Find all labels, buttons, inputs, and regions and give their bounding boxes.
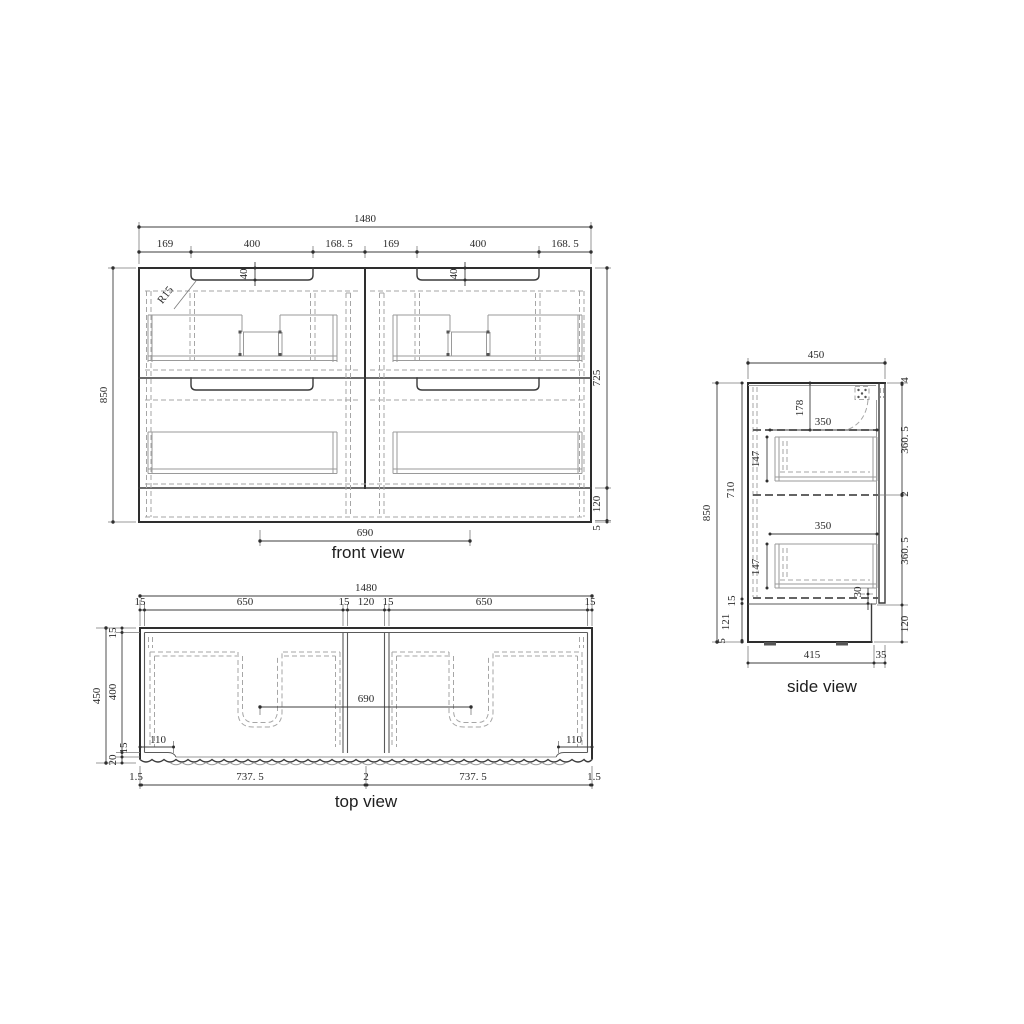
dim-front-corner-radius: R15 <box>155 284 176 306</box>
dim-front-recess-depth-left: 40 <box>238 268 250 280</box>
dim-top-seg-5: 650 <box>476 596 493 608</box>
dim-side-top-drawer-depth: 350 <box>815 416 832 428</box>
dim-front-height-seg-1: 120 <box>591 495 603 512</box>
dim-top-bottom-seg-1: 737. 5 <box>236 771 264 783</box>
dim-side-right-seg-3: 360. 5 <box>899 537 911 565</box>
dim-top-bottom-seg-0: 1.5 <box>129 771 143 783</box>
front-view: 1480 169 400 168. 5 169 400 168. 5 850 7… <box>98 213 611 562</box>
drawing-canvas: 1480 169 400 168. 5 169 400 168. 5 850 7… <box>0 0 1024 1024</box>
dim-front-height-seg-0: 725 <box>591 369 603 386</box>
dim-top-bottom-seg-3: 737. 5 <box>459 771 487 783</box>
dim-front-overall-width: 1480 <box>354 213 377 225</box>
dim-top-depth-seg-3: 20 <box>107 754 119 766</box>
dim-top-basin-offset-right: 110 <box>566 734 583 746</box>
dim-side-right-seg-2: 2 <box>899 491 911 497</box>
dim-front-seg-0: 169 <box>157 238 174 250</box>
dim-side-benchtop-drop: 178 <box>794 399 806 416</box>
dim-side-bottom-seg-1: 35 <box>876 649 888 661</box>
dim-top-depth-seg-1: 400 <box>107 683 119 700</box>
dim-side-bottom-drawer-depth: 350 <box>815 520 832 532</box>
dim-top-seg-1: 650 <box>237 596 254 608</box>
dim-top-seg-0: 15 <box>135 596 147 608</box>
dim-top-overall-width: 1480 <box>355 582 378 594</box>
dim-side-bottom-rail: 30 <box>852 586 864 598</box>
dim-top-bottom-seg-2: 2 <box>363 771 369 783</box>
dim-side-left-seg-2: 121 <box>720 614 732 631</box>
dim-top-depth-seg-2: 15 <box>118 742 130 754</box>
front-view-title: front view <box>332 543 405 562</box>
dim-top-basin-spacing: 690 <box>358 693 375 705</box>
top-view-hidden-lines <box>149 637 584 747</box>
top-view-title: top view <box>335 792 398 811</box>
dim-front-seg-2: 168. 5 <box>325 238 353 250</box>
dim-top-seg-4: 15 <box>383 596 395 608</box>
front-view-dimensions: 1480 169 400 168. 5 169 400 168. 5 850 7… <box>98 213 611 546</box>
dim-side-bottom-seg-0: 415 <box>804 649 821 661</box>
dim-front-recess-depth-right: 40 <box>448 268 460 280</box>
side-view-title: side view <box>787 677 858 696</box>
dim-side-overall-height: 850 <box>701 504 713 521</box>
vanity-technical-drawing: 1480 169 400 168. 5 169 400 168. 5 850 7… <box>0 0 1024 1024</box>
dim-side-top-drawer-height: 147 <box>750 450 762 467</box>
dim-front-seg-1: 400 <box>244 238 261 250</box>
dim-top-seg-6: 15 <box>585 596 597 608</box>
dim-top-basin-offset-left: 110 <box>150 734 167 746</box>
dim-front-drain-spacing: 690 <box>357 527 374 539</box>
top-view: 1480 15 650 15 120 15 650 15 450 15 400 … <box>91 582 601 811</box>
dim-side-left-seg-3: 5 <box>716 638 728 644</box>
dim-side-overall-depth: 450 <box>808 349 825 361</box>
dim-side-right-seg-4: 120 <box>899 615 911 632</box>
dim-side-left-seg-0: 710 <box>725 481 737 498</box>
dim-side-right-seg-0: 4 <box>899 377 911 383</box>
dim-side-right-seg-1: 360. 5 <box>899 426 911 454</box>
dim-top-seg-3: 120 <box>358 596 375 608</box>
dim-front-seg-4: 400 <box>470 238 487 250</box>
dim-front-seg-5: 168. 5 <box>551 238 579 250</box>
dim-side-bottom-drawer-height: 147 <box>750 558 762 575</box>
dim-top-depth-seg-0: 15 <box>107 627 119 639</box>
dim-top-seg-2: 15 <box>339 596 351 608</box>
dim-front-height-seg-2: 5 <box>591 525 603 531</box>
top-view-dimensions: 1480 15 650 15 120 15 650 15 450 15 400 … <box>91 582 601 789</box>
dim-top-overall-depth: 450 <box>91 687 103 704</box>
dim-front-overall-height: 850 <box>98 386 110 403</box>
dim-top-bottom-seg-4: 1.5 <box>587 771 601 783</box>
side-view-drawers <box>775 437 877 588</box>
dim-side-left-seg-1: 15 <box>726 595 738 607</box>
dim-front-seg-3: 169 <box>383 238 400 250</box>
side-view: 450 850 710 15 121 5 4 360. 5 2 360. 5 1… <box>701 349 911 696</box>
